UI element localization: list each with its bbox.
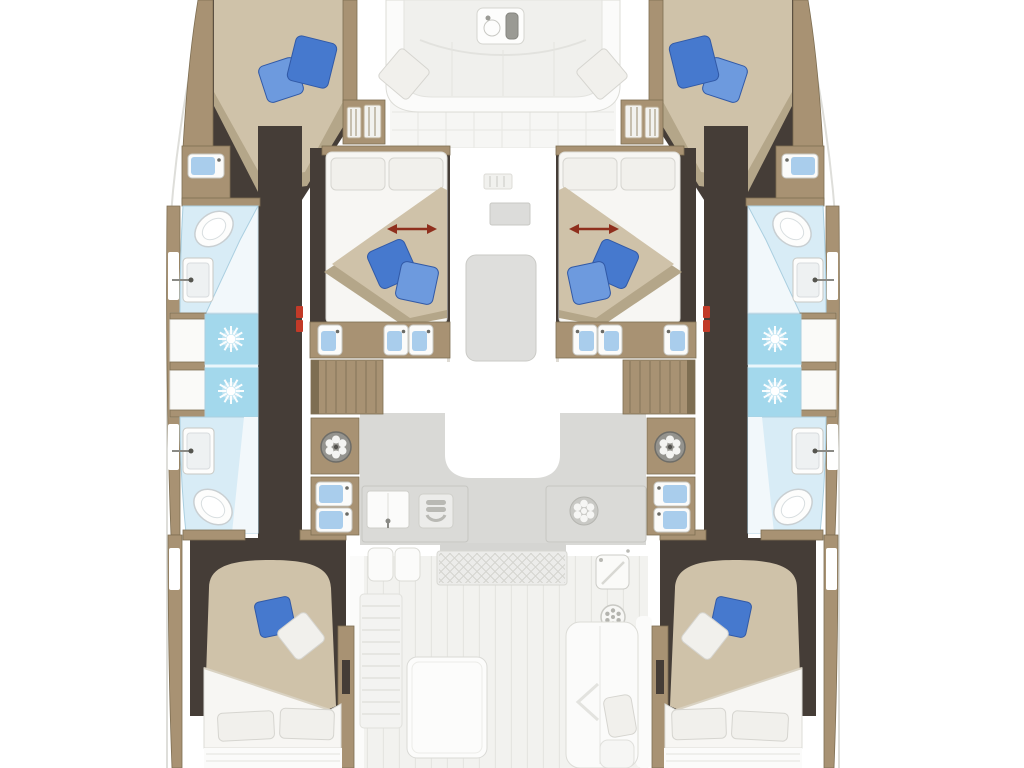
cockpit-table (407, 657, 487, 758)
galley-counter-starboard (546, 486, 646, 542)
catamaran-floor-plan (0, 0, 1024, 768)
salon-walkway (445, 413, 560, 478)
floor-plan-canvas (0, 0, 1024, 768)
galley-sink (367, 491, 409, 528)
vent-grille (484, 174, 512, 189)
tray-item (506, 13, 518, 39)
side-bench-slats (360, 594, 402, 728)
hatch-box (490, 203, 530, 225)
aft-cockpit (350, 548, 652, 768)
cockpit-cushion (395, 548, 420, 581)
burner (570, 497, 598, 525)
salon-console (466, 255, 536, 361)
galley-counter-port (362, 486, 468, 542)
grating (437, 551, 567, 585)
table-item (484, 20, 500, 36)
cockpit-cushion (368, 548, 393, 581)
salon-galley (360, 413, 646, 555)
cockpit-bench (566, 622, 638, 768)
stove (419, 494, 453, 528)
cockpit-table (477, 8, 524, 44)
center-walkway (447, 148, 559, 410)
cockpit-fridge (596, 549, 630, 589)
bench-armrest (600, 740, 634, 768)
